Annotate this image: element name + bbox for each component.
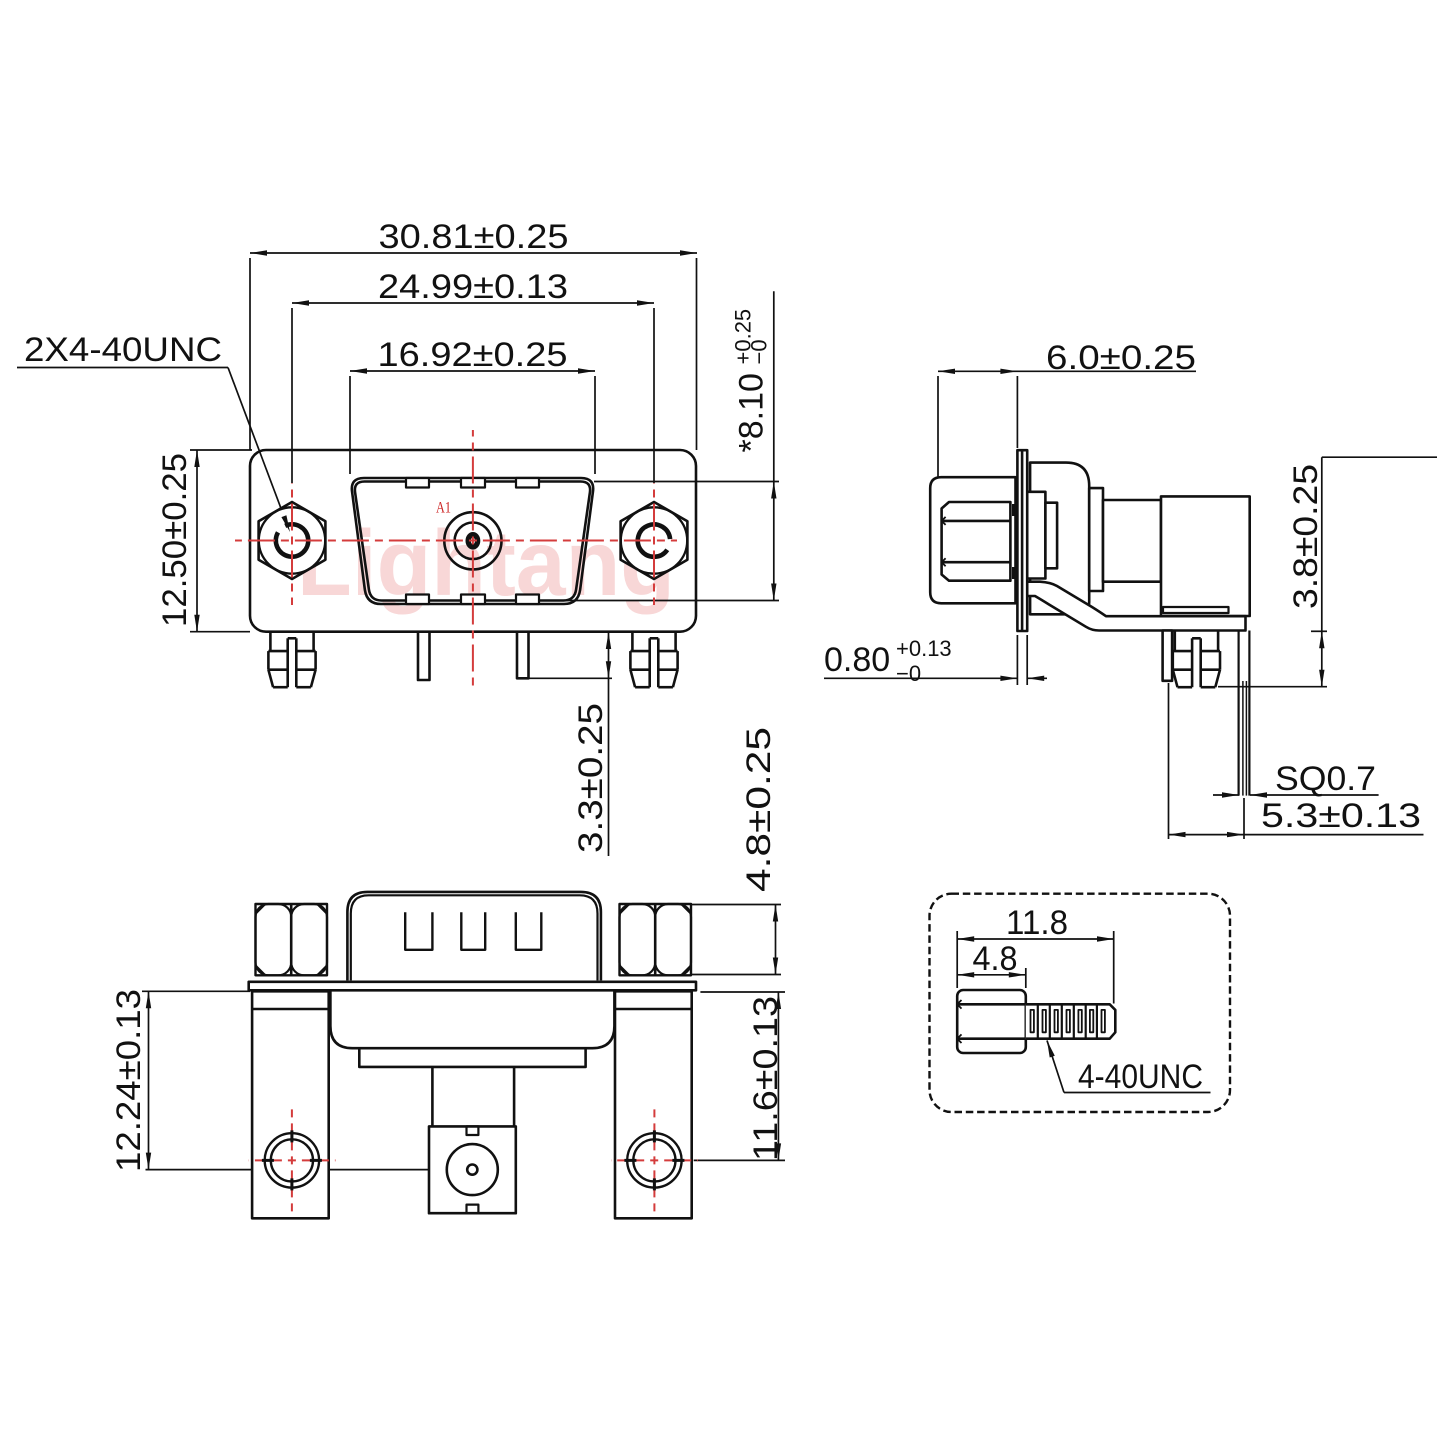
svg-text:16.92±0.25: 16.92±0.25 <box>378 336 568 374</box>
svg-text:−0: −0 <box>896 661 921 686</box>
svg-text:*8.10: *8.10 <box>733 373 771 452</box>
svg-text:30.81±0.25: 30.81±0.25 <box>379 218 569 256</box>
svg-text:4.8±0.25: 4.8±0.25 <box>740 727 778 892</box>
svg-text:24.99±0.13: 24.99±0.13 <box>378 268 568 306</box>
svg-text:5.3±0.13: 5.3±0.13 <box>1261 797 1421 835</box>
svg-text:11.6±0.13: 11.6±0.13 <box>747 996 785 1161</box>
svg-text:SQ0.7: SQ0.7 <box>1275 760 1376 798</box>
svg-text:4.8: 4.8 <box>973 940 1018 978</box>
svg-text:2X4-40UNC: 2X4-40UNC <box>24 331 222 369</box>
svg-text:12.24±0.13: 12.24±0.13 <box>110 989 148 1172</box>
svg-text:11.8: 11.8 <box>1006 904 1068 942</box>
svg-text:0.80: 0.80 <box>824 641 890 679</box>
svg-text:6.0±0.25: 6.0±0.25 <box>1046 339 1196 377</box>
svg-text:+0.13: +0.13 <box>896 636 952 661</box>
svg-text:−0: −0 <box>747 339 772 364</box>
svg-text:12.50±0.25: 12.50±0.25 <box>156 453 194 627</box>
svg-text:4-40UNC: 4-40UNC <box>1078 1058 1203 1096</box>
svg-text:A1: A1 <box>436 500 451 517</box>
svg-text:3.3±0.25: 3.3±0.25 <box>572 703 610 853</box>
svg-text:3.8±0.25: 3.8±0.25 <box>1287 464 1325 609</box>
